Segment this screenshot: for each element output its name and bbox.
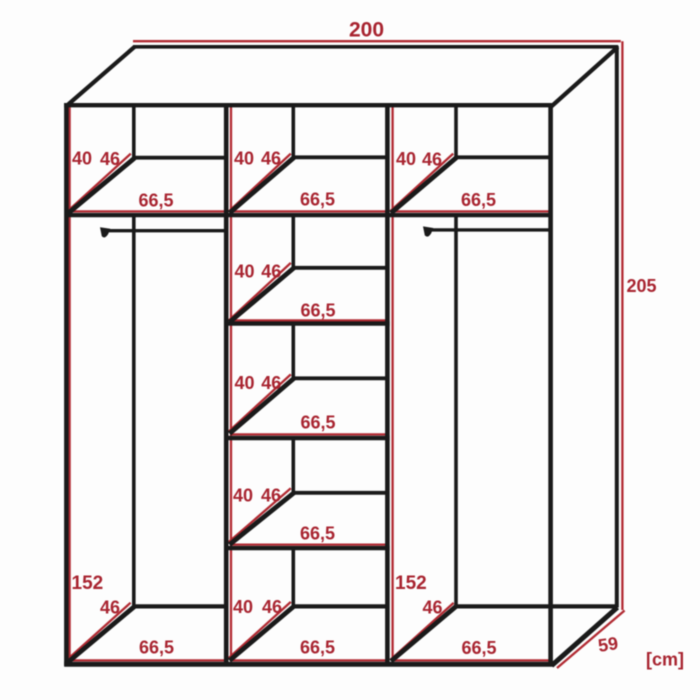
svg-text:66,5: 66,5 (300, 524, 335, 544)
svg-text:66,5: 66,5 (300, 638, 335, 658)
svg-text:40: 40 (235, 373, 255, 393)
svg-text:40: 40 (72, 149, 92, 169)
svg-text:59: 59 (597, 633, 620, 656)
svg-text:46: 46 (262, 597, 282, 617)
svg-text:40: 40 (234, 148, 254, 168)
svg-text:66,5: 66,5 (461, 190, 496, 210)
svg-text:46: 46 (423, 598, 443, 618)
svg-text:66,5: 66,5 (139, 191, 174, 211)
svg-text:66,5: 66,5 (139, 638, 174, 658)
svg-text:46: 46 (261, 486, 281, 506)
svg-text:40: 40 (233, 597, 253, 617)
svg-text:40: 40 (396, 149, 416, 169)
svg-text:46: 46 (261, 262, 281, 282)
svg-text:[cm]: [cm] (646, 650, 684, 670)
svg-text:46: 46 (261, 148, 281, 168)
svg-text:46: 46 (261, 373, 281, 393)
svg-text:152: 152 (395, 573, 427, 594)
svg-text:66,5: 66,5 (300, 190, 335, 210)
svg-text:40: 40 (233, 486, 253, 506)
svg-text:205: 205 (627, 276, 657, 296)
svg-text:152: 152 (72, 573, 104, 594)
svg-text:40: 40 (235, 262, 255, 282)
svg-text:46: 46 (100, 598, 120, 618)
svg-text:66,5: 66,5 (462, 638, 497, 658)
svg-text:46: 46 (422, 150, 442, 170)
svg-text:46: 46 (100, 149, 120, 169)
svg-text:66,5: 66,5 (301, 301, 336, 321)
svg-text:66,5: 66,5 (301, 413, 336, 433)
svg-text:200: 200 (349, 19, 384, 42)
